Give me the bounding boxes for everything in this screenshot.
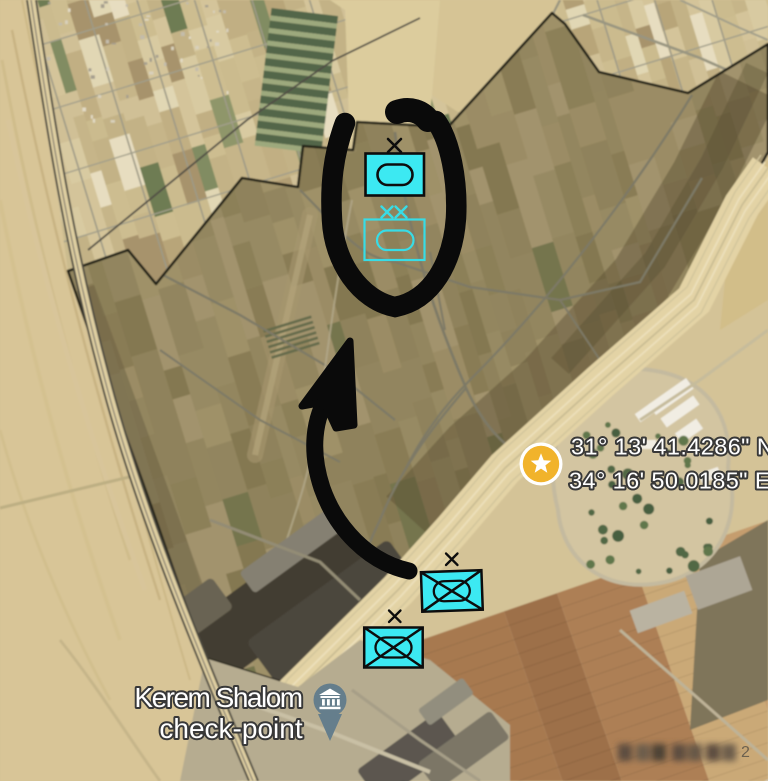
svg-text:34° 16' 50.0185" E: 34° 16' 50.0185" E — [569, 468, 768, 494]
svg-text:2: 2 — [741, 744, 750, 761]
svg-text:check-point: check-point — [159, 713, 302, 744]
svg-text:31° 13' 41.4286" N: 31° 13' 41.4286" N — [571, 434, 768, 460]
svg-text:Kerem Shalom: Kerem Shalom — [134, 682, 301, 713]
